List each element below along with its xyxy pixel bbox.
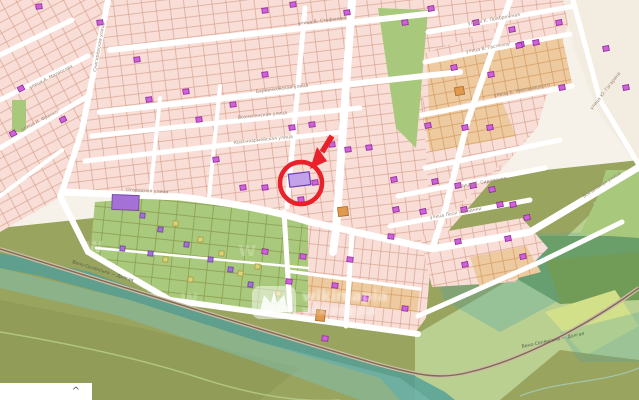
map-canvas[interactable]: Вено-Селянська — ДолгаяВено-Селянська — … — [0, 0, 639, 400]
building — [219, 251, 224, 256]
building — [312, 180, 319, 186]
building — [393, 207, 400, 213]
building — [366, 145, 373, 151]
building — [497, 202, 504, 208]
building — [402, 20, 409, 26]
building — [345, 147, 352, 153]
building — [158, 227, 163, 232]
building — [388, 234, 394, 240]
building — [420, 209, 427, 215]
building — [623, 85, 630, 91]
building — [455, 239, 462, 245]
building — [454, 86, 464, 95]
building — [238, 271, 243, 276]
building — [432, 179, 439, 185]
building — [462, 262, 469, 268]
building — [298, 197, 305, 203]
building — [173, 221, 178, 226]
watermark-text-line1: wikimapia — [302, 287, 388, 305]
building — [208, 257, 213, 262]
building — [462, 125, 469, 131]
building — [391, 177, 398, 183]
building — [347, 257, 353, 263]
building — [344, 10, 351, 16]
watermark-text-line2: wikimapia — [302, 304, 376, 319]
building — [505, 236, 512, 242]
building — [533, 40, 540, 46]
building — [286, 279, 292, 285]
building — [230, 102, 237, 108]
building — [262, 185, 269, 191]
building — [163, 257, 168, 262]
building — [337, 206, 348, 216]
collapse-caret-icon[interactable]: ^ — [72, 387, 80, 397]
building — [524, 215, 531, 221]
building — [487, 125, 494, 131]
watermark-mini-w: w — [180, 285, 198, 309]
building — [213, 157, 220, 163]
building — [262, 72, 269, 78]
building — [134, 57, 141, 63]
building — [262, 8, 269, 14]
building — [228, 267, 233, 272]
building — [140, 213, 145, 218]
building — [262, 249, 268, 255]
building — [509, 27, 516, 33]
building — [322, 336, 328, 342]
building — [183, 89, 190, 95]
building — [184, 242, 189, 247]
building — [520, 254, 527, 260]
highlighted-building — [288, 172, 310, 187]
building — [36, 4, 43, 10]
building — [488, 72, 495, 78]
building — [196, 117, 203, 123]
building — [248, 282, 253, 287]
building — [451, 65, 458, 71]
building — [240, 185, 247, 191]
building — [489, 187, 496, 193]
building — [290, 2, 297, 8]
watermark-mini-w: w — [238, 237, 256, 261]
building — [289, 125, 296, 131]
building — [112, 195, 140, 211]
building — [148, 251, 153, 256]
building — [516, 43, 523, 49]
building — [120, 246, 125, 251]
building — [402, 306, 408, 312]
building — [428, 6, 435, 12]
building — [309, 122, 316, 128]
building — [559, 85, 566, 91]
building — [255, 264, 260, 269]
building — [188, 277, 193, 282]
building — [300, 254, 306, 260]
building — [603, 46, 610, 52]
watermark-mini-w: w — [85, 233, 103, 257]
building — [146, 97, 153, 103]
building — [198, 237, 203, 242]
building — [556, 20, 563, 26]
attribution-toggle[interactable]: ^ — [0, 383, 92, 400]
map-svg: Вено-Селянська — ДолгаяВено-Селянська — … — [0, 0, 639, 400]
building — [425, 123, 432, 129]
building — [510, 202, 517, 208]
